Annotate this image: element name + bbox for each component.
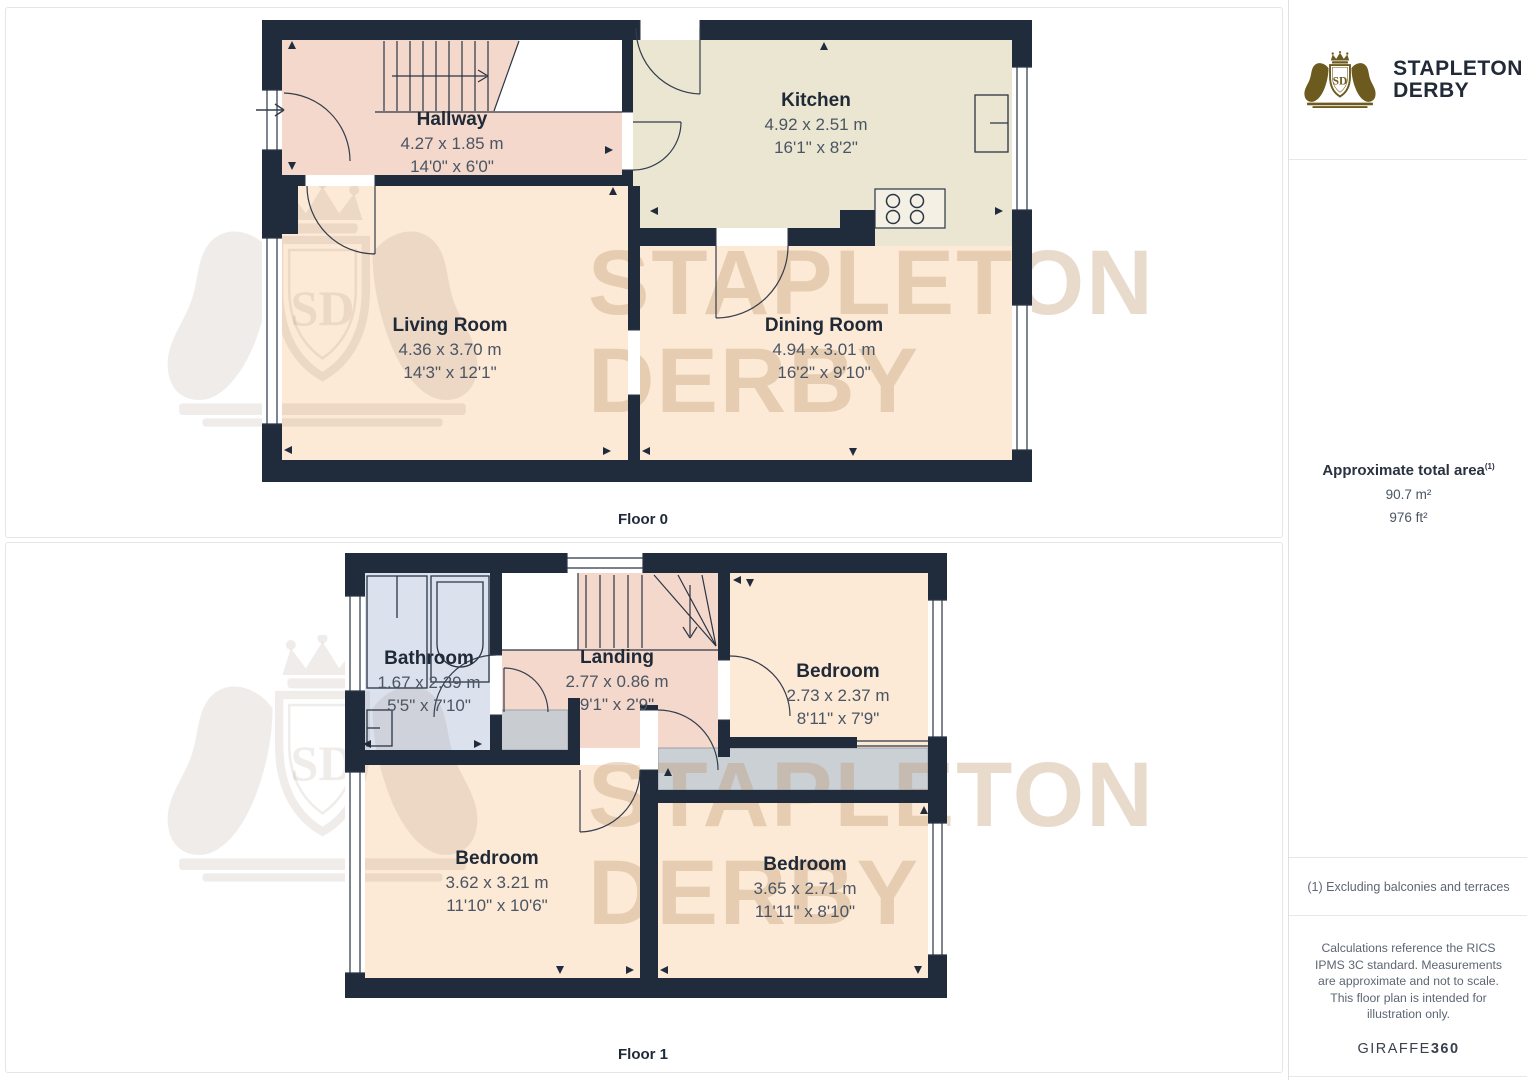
room-label-landing: Landing 2.77 x 0.86 m 9'1" x 2'9" xyxy=(565,646,668,716)
room-dim-metric: 4.36 x 3.70 m xyxy=(392,338,507,361)
provider-name: GIRAFFE xyxy=(1357,1041,1430,1057)
room-name: Landing xyxy=(565,646,668,670)
room-name: Bathroom xyxy=(377,647,480,671)
room-dim-imperial: 16'1" x 8'2" xyxy=(764,136,867,159)
agency-logo: STAPLETON DERBY xyxy=(1289,0,1527,160)
agency-name-line2: DERBY xyxy=(1393,80,1523,102)
floorplan-page: SD xyxy=(0,0,1527,1080)
room-label-bathroom: Bathroom 1.67 x 2.39 m 5'5" x 7'10" xyxy=(377,647,480,717)
room-dim-imperial: 11'10" x 10'6" xyxy=(445,894,548,917)
room-label-living-room: Living Room 4.36 x 3.70 m 14'3" x 12'1" xyxy=(392,314,507,384)
room-dim-metric: 2.77 x 0.86 m xyxy=(565,670,668,693)
room-dim-metric: 3.62 x 3.21 m xyxy=(445,871,548,894)
footnote-section: (1) Excluding balconies and terraces xyxy=(1289,857,1527,916)
room-dim-imperial: 11'11" x 8'10" xyxy=(753,900,856,923)
room-dim-imperial: 16'2" x 9'10" xyxy=(765,361,883,384)
room-dim-imperial: 5'5" x 7'10" xyxy=(377,694,480,717)
floor1-label: Floor 1 xyxy=(618,1046,668,1063)
room-dim-metric: 1.67 x 2.39 m xyxy=(377,671,480,694)
room-name: Hallway xyxy=(400,108,503,132)
room-label-kitchen: Kitchen 4.92 x 2.51 m 16'1" x 8'2" xyxy=(764,89,867,159)
room-dim-metric: 4.92 x 2.51 m xyxy=(764,113,867,136)
provider-suffix: 360 xyxy=(1431,1041,1460,1057)
floor1-panel xyxy=(5,542,1283,1073)
agency-crest-icon xyxy=(1294,51,1386,109)
floor0-label: Floor 0 xyxy=(618,511,668,528)
agency-name-line1: STAPLETON xyxy=(1393,58,1523,80)
provider-logo: GIRAFFE360 xyxy=(1289,1041,1527,1057)
disclaimer-text: Calculations reference the RICS IPMS 3C … xyxy=(1307,940,1511,1023)
room-label-hallway: Hallway 4.27 x 1.85 m 14'0" x 6'0" xyxy=(400,108,503,178)
room-label-dining-room: Dining Room 4.94 x 3.01 m 16'2" x 9'10" xyxy=(765,314,883,384)
footnote-text: (1) Excluding balconies and terraces xyxy=(1307,880,1509,894)
agency-name: STAPLETON DERBY xyxy=(1393,58,1523,102)
total-area-block: Approximate total area(1) 90.7 m² 976 ft… xyxy=(1289,462,1527,525)
room-dim-imperial: 14'0" x 6'0" xyxy=(400,155,503,178)
room-name: Living Room xyxy=(392,314,507,338)
room-name: Kitchen xyxy=(764,89,867,113)
room-name: Bedroom xyxy=(445,847,548,871)
room-dim-metric: 4.27 x 1.85 m xyxy=(400,132,503,155)
total-area-footnote-ref: (1) xyxy=(1485,462,1495,471)
room-label-bedroom-2: Bedroom 3.62 x 3.21 m 11'10" x 10'6" xyxy=(445,847,548,917)
room-name: Bedroom xyxy=(786,660,889,684)
room-dim-imperial: 9'1" x 2'9" xyxy=(565,693,668,716)
room-dim-imperial: 8'11" x 7'9" xyxy=(786,707,889,730)
disclaimer-section: Calculations reference the RICS IPMS 3C … xyxy=(1289,915,1527,1077)
floor0-panel xyxy=(5,7,1283,538)
room-name: Bedroom xyxy=(753,853,856,877)
total-area-ft2: 976 ft² xyxy=(1289,510,1527,525)
room-dim-imperial: 14'3" x 12'1" xyxy=(392,361,507,384)
room-dim-metric: 2.73 x 2.37 m xyxy=(786,684,889,707)
room-label-bedroom-1: Bedroom 2.73 x 2.37 m 8'11" x 7'9" xyxy=(786,660,889,730)
total-area-m2: 90.7 m² xyxy=(1289,487,1527,502)
room-dim-metric: 3.65 x 2.71 m xyxy=(753,877,856,900)
info-sidebar: STAPLETON DERBY Approximate total area(1… xyxy=(1288,0,1527,1080)
room-name: Dining Room xyxy=(765,314,883,338)
room-dim-metric: 4.94 x 3.01 m xyxy=(765,338,883,361)
total-area-label: Approximate total area(1) xyxy=(1289,462,1527,479)
room-label-bedroom-3: Bedroom 3.65 x 2.71 m 11'11" x 8'10" xyxy=(753,853,856,923)
